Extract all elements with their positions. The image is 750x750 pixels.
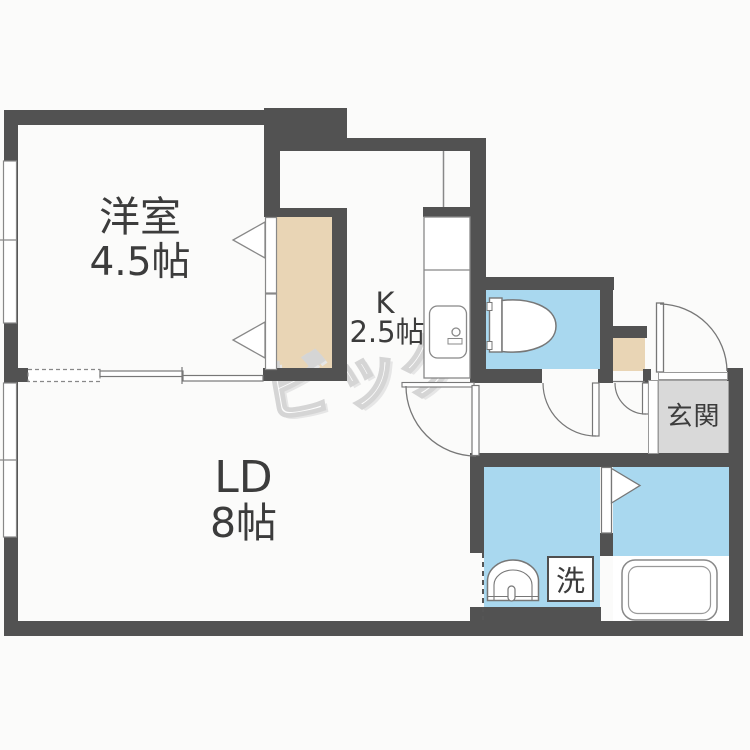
entrance-door-arc [660,304,727,371]
closet-door-arrow-2 [233,322,265,358]
living-dining-name: LD [146,455,341,501]
floor-plan: ビッグ [0,0,750,750]
western-room-size: 4.5帖 [45,243,235,284]
entrance-door-leaf [657,303,664,372]
kitchen-size: 2.5帖 [328,317,446,347]
window-western [4,161,17,323]
closet-door-panel-2 [266,294,277,370]
bathtub-outer [622,560,717,620]
kitchen-door-leaf [472,386,479,456]
toilet-door-leaf [593,383,600,436]
toilet-bowl [502,300,556,352]
opening-dashed [28,370,100,382]
washing-machine-space: 洗 [547,556,594,602]
symbols-layer [0,0,750,750]
kitchen-faucet [452,328,460,336]
western-room-name: 洋室 [45,196,235,239]
toilet-door-arc [543,383,596,436]
entrance-label: 玄関 [658,404,729,431]
shoe-storage-door-leaf [643,383,649,414]
sliding-door-panel-1 [100,371,183,377]
bath-door-pennant [612,469,641,504]
shoe-storage-door-arc [615,383,646,414]
entrance-threshold [659,373,728,380]
bath-door-bar [602,468,612,534]
living-dining-size: 8帖 [146,502,341,545]
toilet-tank-tab-top [487,303,492,311]
closet-door-panel-1 [266,218,277,294]
washbasin-faucet [508,586,515,601]
washing-machine-label: 洗 [556,558,585,600]
sliding-door-panel-2 [183,376,263,382]
kitchen-sink-drain [448,339,462,345]
closet-door-arrow-1 [233,222,265,258]
kitchen-door-threshold [402,383,474,388]
toilet-tank-tab-bottom [487,342,492,350]
kitchen-door-arc [406,386,476,456]
entrance-step [649,381,659,454]
kitchen-name: K [330,288,440,318]
